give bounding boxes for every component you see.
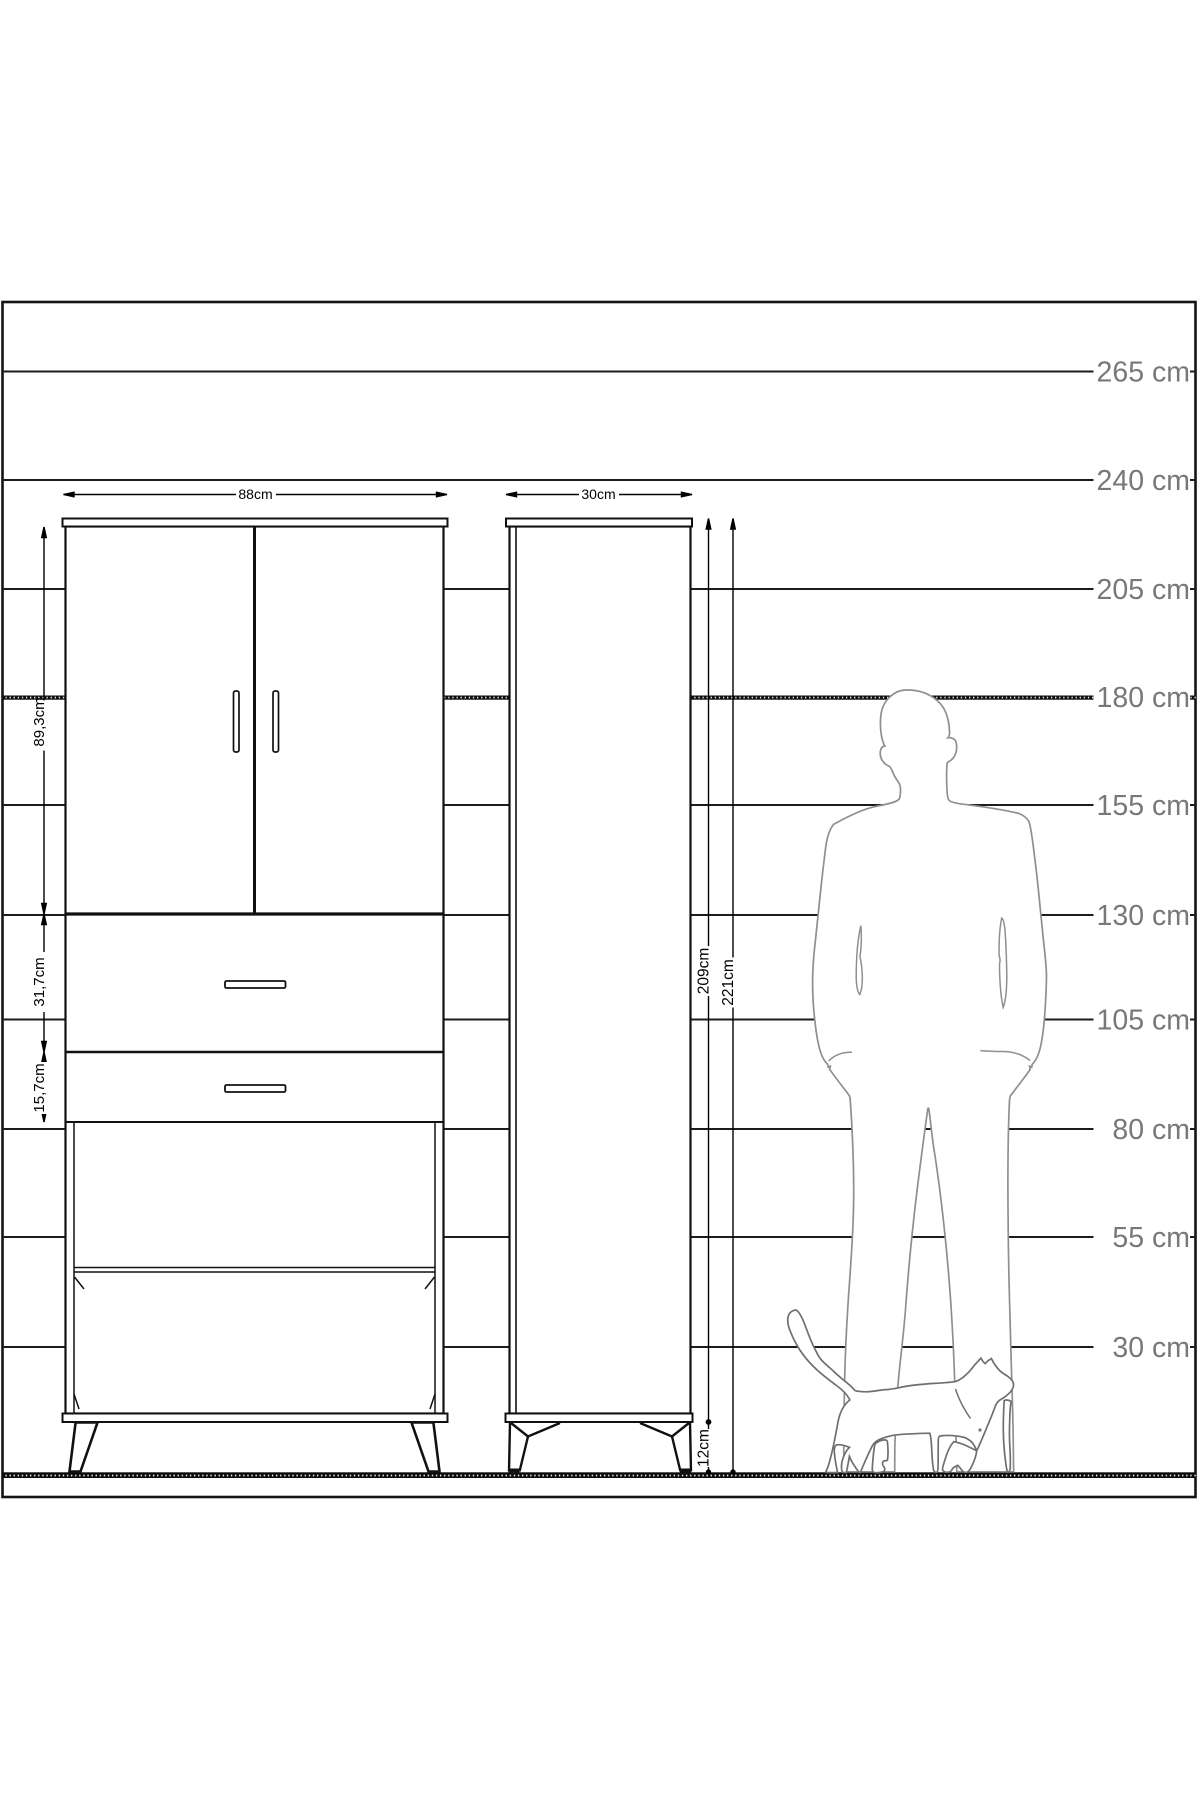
- svg-text:31,7cm: 31,7cm: [31, 957, 48, 1006]
- svg-text:240 cm: 240 cm: [1097, 465, 1190, 497]
- svg-text:12cm: 12cm: [696, 1429, 713, 1467]
- svg-text:105 cm: 105 cm: [1097, 1005, 1190, 1037]
- svg-text:89,3cm: 89,3cm: [31, 697, 48, 746]
- svg-text:130 cm: 130 cm: [1097, 900, 1190, 932]
- svg-text:30cm: 30cm: [581, 486, 615, 502]
- svg-text:88cm: 88cm: [238, 486, 272, 502]
- svg-text:15,7cm: 15,7cm: [31, 1063, 48, 1112]
- svg-text:155 cm: 155 cm: [1097, 790, 1190, 822]
- svg-text:265 cm: 265 cm: [1097, 357, 1190, 389]
- svg-text:180 cm: 180 cm: [1097, 682, 1190, 714]
- svg-text:80 cm: 80 cm: [1112, 1114, 1190, 1146]
- svg-text:30 cm: 30 cm: [1112, 1332, 1190, 1364]
- svg-text:209cm: 209cm: [696, 948, 713, 995]
- svg-text:55 cm: 55 cm: [1112, 1222, 1190, 1254]
- svg-text:221cm: 221cm: [720, 959, 737, 1006]
- svg-text:205 cm: 205 cm: [1097, 574, 1190, 606]
